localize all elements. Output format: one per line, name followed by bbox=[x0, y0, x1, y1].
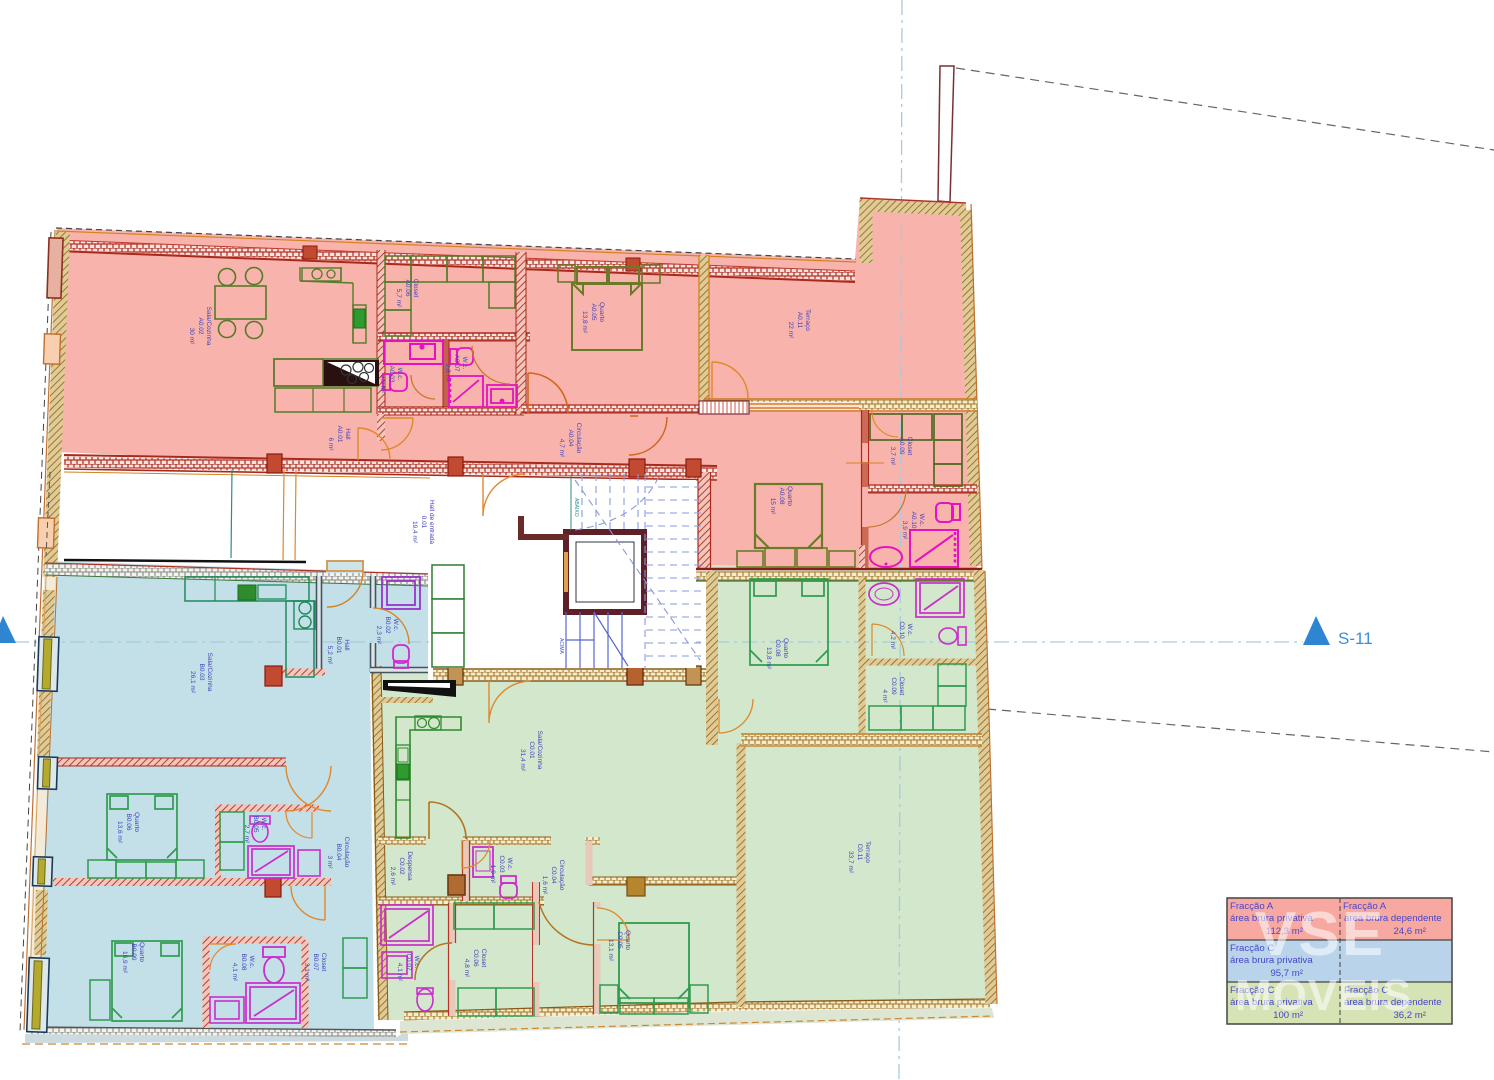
svg-text:B0.09: B0.09 bbox=[130, 944, 137, 961]
svg-text:W.c.: W.c. bbox=[906, 624, 913, 637]
svg-text:B0.05: B0.05 bbox=[252, 816, 259, 833]
svg-text:Circulação: Circulação bbox=[343, 837, 350, 868]
svg-text:C0.03: C0.03 bbox=[498, 855, 505, 873]
svg-text:4,7 m²: 4,7 m² bbox=[558, 439, 565, 458]
svg-text:A0.01: A0.01 bbox=[336, 426, 343, 443]
svg-text:30 m²: 30 m² bbox=[188, 328, 195, 345]
svg-text:5,7 m²: 5,7 m² bbox=[395, 289, 402, 308]
svg-text:Closet: Closet bbox=[320, 953, 327, 972]
svg-text:0.01: 0.01 bbox=[420, 516, 427, 529]
svg-text:Hall: Hall bbox=[344, 428, 351, 440]
svg-text:2,9 m²: 2,9 m² bbox=[379, 375, 386, 394]
svg-text:5,2 m²: 5,2 m² bbox=[326, 646, 333, 665]
svg-text:2,7 m²: 2,7 m² bbox=[243, 825, 250, 844]
svg-text:3 m²: 3 m² bbox=[326, 856, 333, 870]
svg-text:Closet: Closet bbox=[906, 437, 913, 456]
svg-text:B0.06: B0.06 bbox=[125, 814, 132, 831]
svg-text:A0.08: A0.08 bbox=[778, 488, 785, 505]
svg-text:W.c.: W.c. bbox=[506, 858, 513, 871]
svg-text:3,9 m²: 3,9 m² bbox=[901, 521, 908, 540]
svg-text:ABAIXO: ABAIXO bbox=[573, 498, 579, 517]
svg-text:Closet: Closet bbox=[412, 279, 419, 298]
svg-text:Terraço: Terraço bbox=[804, 309, 811, 331]
svg-text:W.c.: W.c. bbox=[918, 514, 925, 527]
svg-text:15 m²: 15 m² bbox=[769, 498, 776, 515]
svg-text:24,6 m²: 24,6 m² bbox=[1393, 926, 1426, 937]
svg-text:33,7 m²: 33,7 m² bbox=[847, 851, 854, 874]
svg-text:W.c.: W.c. bbox=[248, 956, 255, 969]
svg-text:Quarto: Quarto bbox=[598, 302, 605, 322]
svg-text:Sala/Cozinha: Sala/Cozinha bbox=[206, 653, 213, 692]
svg-text:Sala/Cozinha: Sala/Cozinha bbox=[536, 731, 543, 770]
svg-text:C0.05: C0.05 bbox=[616, 931, 623, 949]
svg-text:Circulação: Circulação bbox=[575, 423, 582, 454]
svg-text:13,8 m²: 13,8 m² bbox=[765, 647, 772, 670]
svg-text:3,1 m²: 3,1 m² bbox=[303, 963, 310, 982]
svg-text:Sala/Cozinha: Sala/Cozinha bbox=[205, 307, 212, 346]
svg-text:C0.08: C0.08 bbox=[774, 639, 781, 657]
svg-text:A0.06: A0.06 bbox=[404, 280, 411, 297]
svg-text:2,8 m²: 2,8 m² bbox=[444, 364, 451, 383]
svg-text:A0.05: A0.05 bbox=[590, 304, 597, 321]
svg-text:4,1 m²: 4,1 m² bbox=[396, 963, 403, 982]
svg-text:Terraço: Terraço bbox=[864, 841, 871, 863]
svg-text:Quarto: Quarto bbox=[786, 486, 793, 506]
svg-text:Hall de entrada: Hall de entrada bbox=[428, 500, 435, 544]
svg-text:A0.11: A0.11 bbox=[796, 312, 803, 329]
svg-text:2,6 m²: 2,6 m² bbox=[389, 867, 396, 886]
svg-text:26,1 m²: 26,1 m² bbox=[189, 671, 196, 694]
svg-text:ACIMA: ACIMA bbox=[558, 638, 564, 655]
svg-text:4 m²: 4 m² bbox=[881, 690, 888, 704]
svg-text:31,4 m²: 31,4 m² bbox=[519, 749, 526, 772]
svg-text:W.c.: W.c. bbox=[260, 818, 267, 831]
svg-text:B0.04: B0.04 bbox=[335, 844, 342, 861]
svg-text:B0.07: B0.07 bbox=[312, 954, 319, 971]
svg-text:13,6 m²: 13,6 m² bbox=[116, 821, 123, 844]
svg-text:Quarto: Quarto bbox=[133, 812, 140, 832]
svg-text:B0.01: B0.01 bbox=[335, 637, 342, 654]
svg-text:Quarto: Quarto bbox=[624, 930, 631, 950]
svg-text:C0.02: C0.02 bbox=[398, 857, 405, 875]
svg-text:1,6 m²: 1,6 m² bbox=[541, 876, 548, 895]
svg-text:B0.03: B0.03 bbox=[198, 664, 205, 681]
svg-text:MOVEIS: MOVEIS bbox=[1235, 971, 1412, 1020]
svg-text:A0.03: A0.03 bbox=[388, 366, 395, 383]
svg-text:6 m²: 6 m² bbox=[327, 438, 334, 452]
svg-text:3,7 m²: 3,7 m² bbox=[889, 447, 896, 466]
svg-text:22 m²: 22 m² bbox=[787, 322, 794, 339]
svg-text:A0.07: A0.07 bbox=[453, 355, 460, 372]
svg-text:A0.04: A0.04 bbox=[567, 430, 574, 447]
svg-text:Closet: Closet bbox=[898, 677, 905, 696]
svg-text:Despensa: Despensa bbox=[406, 851, 413, 881]
svg-text:1,9 m²: 1,9 m² bbox=[489, 865, 496, 884]
svg-text:4,8 m²: 4,8 m² bbox=[463, 959, 470, 978]
svg-text:B0.08: B0.08 bbox=[240, 954, 247, 971]
svg-text:Hall: Hall bbox=[343, 639, 350, 651]
svg-text:Closet: Closet bbox=[480, 949, 487, 968]
svg-text:C0.09: C0.09 bbox=[890, 677, 897, 695]
svg-text:VSE: VSE bbox=[1255, 900, 1385, 969]
svg-text:2,3 m²: 2,3 m² bbox=[375, 626, 382, 645]
svg-text:16,9 m²: 16,9 m² bbox=[121, 951, 128, 974]
svg-text:C0.01: C0.01 bbox=[528, 741, 535, 759]
svg-text:A0.02: A0.02 bbox=[197, 318, 204, 335]
svg-text:4,1 m²: 4,1 m² bbox=[231, 963, 238, 982]
svg-text:C0.06: C0.06 bbox=[472, 949, 479, 967]
svg-text:Quarto: Quarto bbox=[782, 638, 789, 658]
svg-text:13,8 m²: 13,8 m² bbox=[581, 311, 588, 334]
svg-text:S-11: S-11 bbox=[1338, 629, 1373, 648]
svg-text:W.c.: W.c. bbox=[392, 619, 399, 632]
svg-text:Circulação: Circulação bbox=[558, 860, 565, 891]
svg-text:A0.10: A0.10 bbox=[910, 512, 917, 529]
svg-text:A0.09: A0.09 bbox=[898, 438, 905, 455]
svg-text:B0.02: B0.02 bbox=[384, 617, 391, 634]
svg-text:19,4 m²: 19,4 m² bbox=[411, 521, 418, 544]
svg-text:W.c.: W.c. bbox=[461, 357, 468, 370]
svg-text:C0.10: C0.10 bbox=[898, 621, 905, 639]
svg-text:13,1 m²: 13,1 m² bbox=[607, 939, 614, 962]
svg-text:W.c.: W.c. bbox=[396, 368, 403, 381]
svg-text:Quarto: Quarto bbox=[138, 942, 145, 962]
svg-text:W.c.: W.c. bbox=[413, 956, 420, 969]
svg-text:C0.07: C0.07 bbox=[405, 953, 412, 971]
svg-text:C0.11: C0.11 bbox=[856, 844, 863, 861]
svg-text:C0.04: C0.04 bbox=[550, 866, 557, 884]
svg-text:4,2 m²: 4,2 m² bbox=[889, 631, 896, 650]
